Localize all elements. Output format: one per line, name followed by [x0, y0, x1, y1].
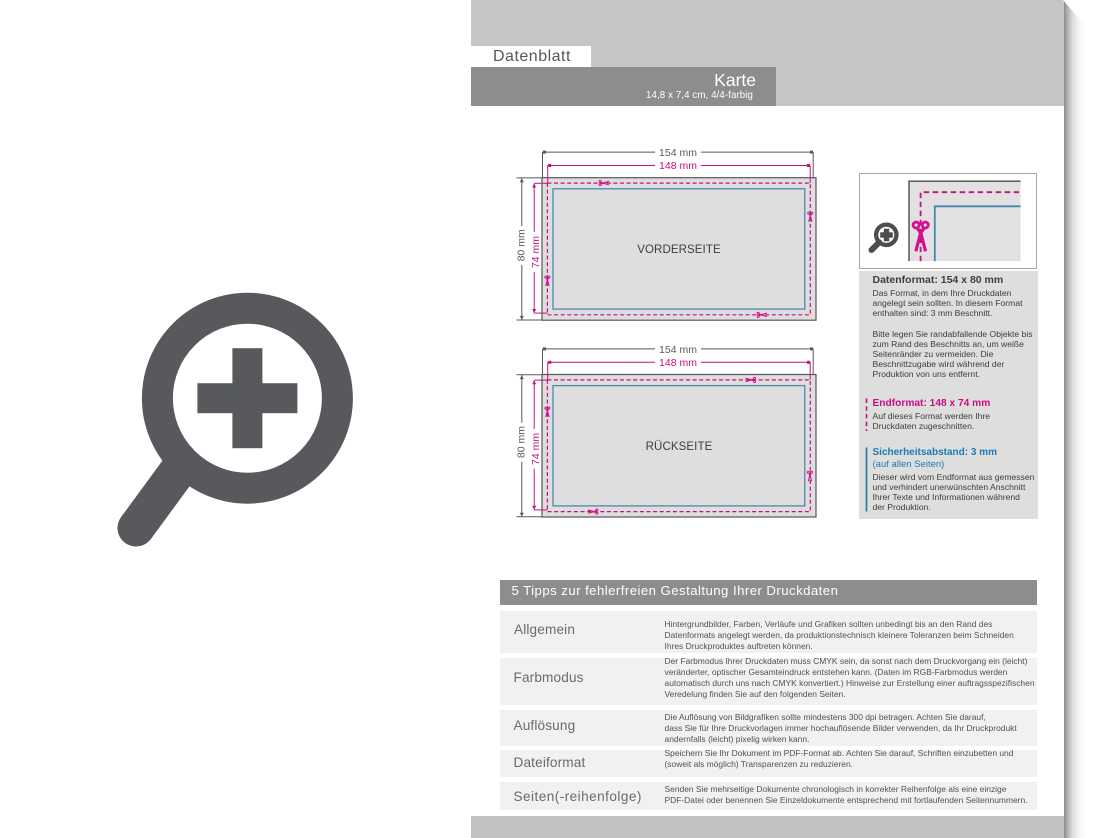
svg-text:74 mm: 74 mm: [530, 236, 542, 268]
svg-text:80 mm: 80 mm: [515, 229, 527, 261]
svg-text:154 mm: 154 mm: [659, 147, 697, 159]
svg-text:VORDERSEITE: VORDERSEITE: [637, 244, 721, 256]
svg-text:RÜCKSEITE: RÜCKSEITE: [646, 441, 713, 453]
svg-text:148 mm: 148 mm: [659, 160, 697, 172]
